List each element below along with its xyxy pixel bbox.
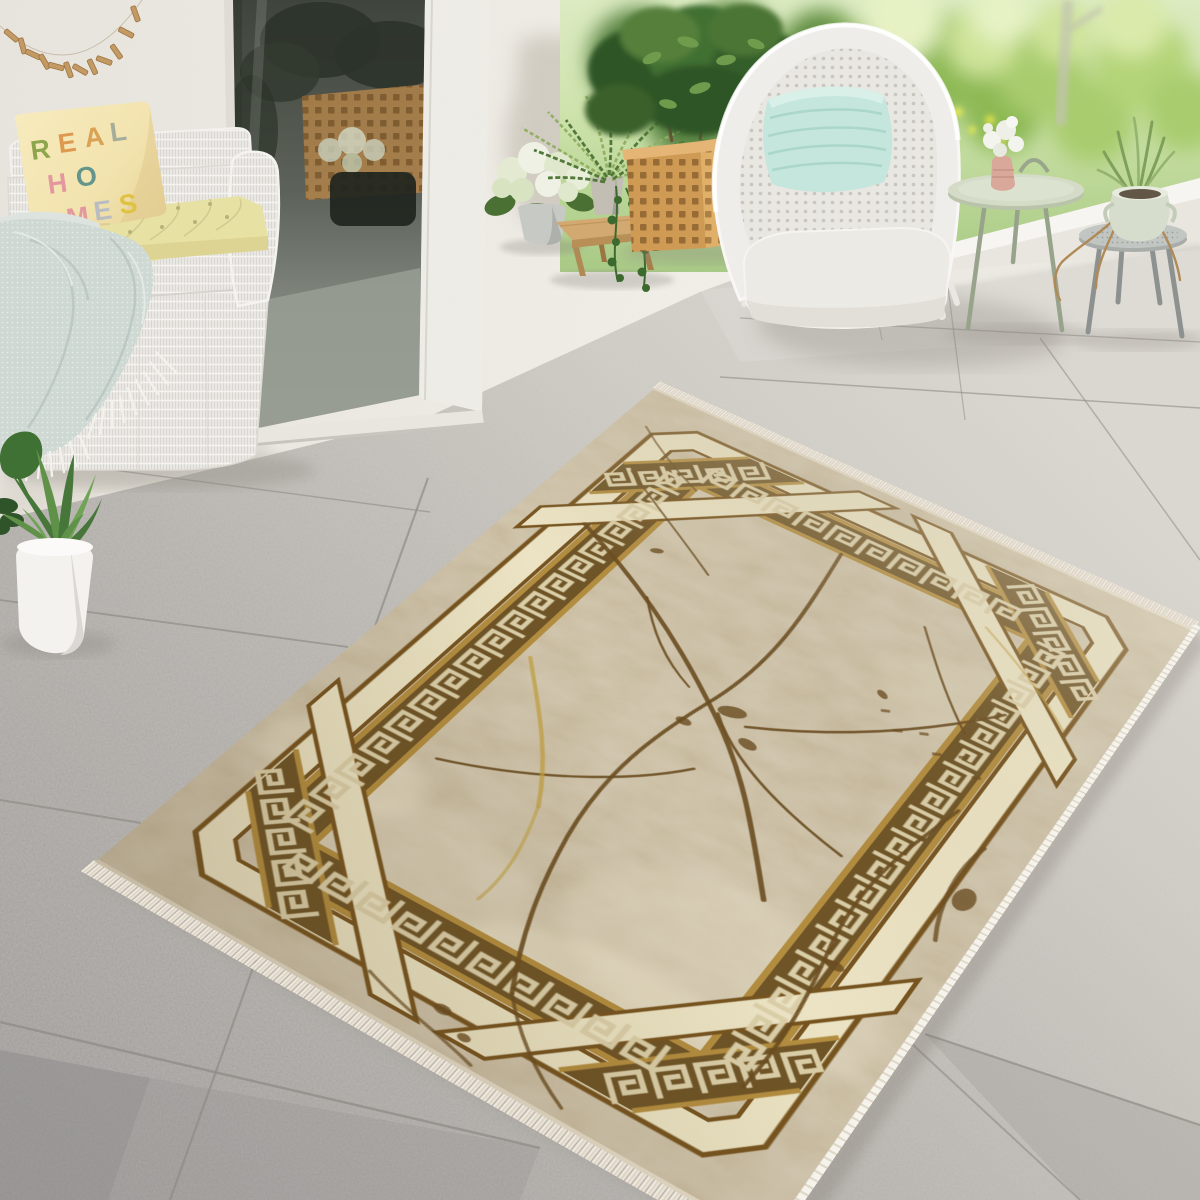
pillow-letter: O	[74, 160, 99, 193]
white-plant-pot	[16, 538, 93, 655]
pillow-letter: R	[29, 133, 52, 165]
fern-pot	[590, 176, 624, 215]
chair-pillow	[763, 87, 892, 192]
pillow-letter: H	[46, 167, 69, 199]
door-frame-right	[419, 0, 490, 412]
patio-scene: R E A L H O M E S	[0, 0, 1200, 1200]
pillow-letter: A	[82, 121, 105, 153]
